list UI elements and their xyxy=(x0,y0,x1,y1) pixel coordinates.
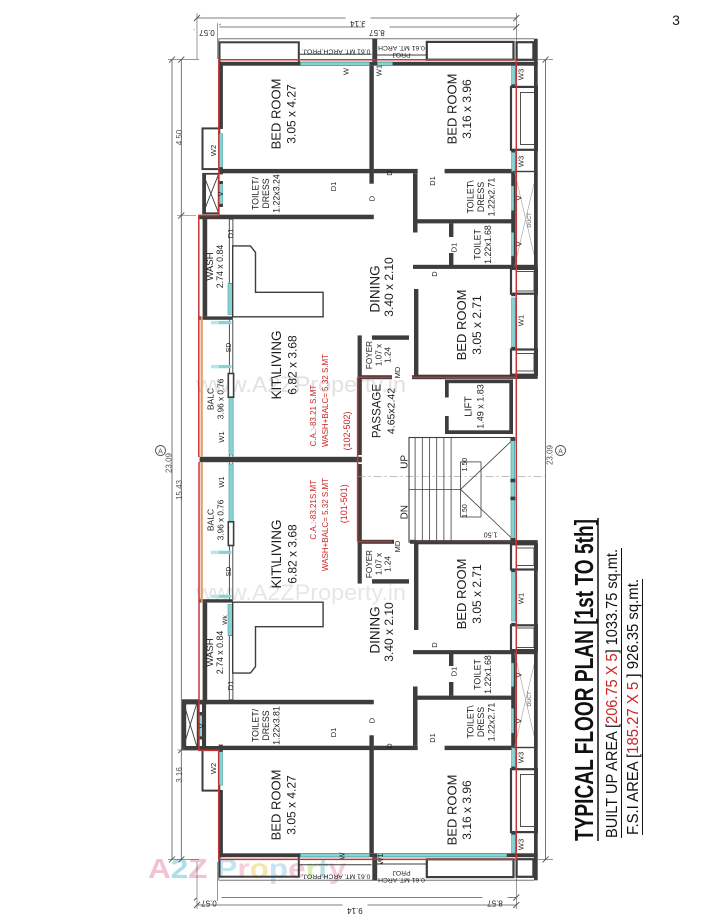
svg-text:TOILET\: TOILET\ xyxy=(466,705,476,739)
svg-text:TYPICAL FLOOR PLAN [1st TO 5th: TYPICAL FLOOR PLAN [1st TO 5th] xyxy=(569,519,599,841)
svg-text:8.57: 8.57 xyxy=(487,898,503,907)
svg-text:1.50: 1.50 xyxy=(462,458,469,472)
svg-text:1.22x3.81: 1.22x3.81 xyxy=(272,706,282,745)
svg-text:3.05 x 4.27: 3.05 x 4.27 xyxy=(284,775,298,835)
svg-text:1.24: 1.24 xyxy=(383,556,392,572)
svg-text:6.82 x 3.68: 6.82 x 3.68 xyxy=(285,524,299,584)
svg-text:BALC: BALC xyxy=(206,388,216,410)
svg-text:KIT\LIVING: KIT\LIVING xyxy=(269,330,284,399)
svg-text:3.40 x 2.10: 3.40 x 2.10 xyxy=(382,602,396,662)
svg-text:W2: W2 xyxy=(209,763,218,774)
svg-text:D1: D1 xyxy=(329,182,338,192)
svg-text:BED ROOM: BED ROOM xyxy=(269,770,284,841)
svg-text:TOILET/: TOILET/ xyxy=(251,176,261,210)
svg-text:DINING: DINING xyxy=(368,606,383,653)
svg-text:WASH+BALC= 5.32 S.MT: WASH+BALC= 5.32 S.MT xyxy=(321,354,330,447)
svg-text:W1: W1 xyxy=(217,431,226,442)
svg-text:BED ROOM: BED ROOM xyxy=(454,559,469,630)
svg-text:0.61 MT. ARCH: 0.61 MT. ARCH xyxy=(378,44,425,51)
svg-text:(102-502): (102-502) xyxy=(342,411,352,450)
svg-text:BALC: BALC xyxy=(206,509,216,531)
svg-text:V: V xyxy=(197,723,206,728)
svg-text:D: D xyxy=(430,642,439,648)
svg-text:D1: D1 xyxy=(428,733,437,743)
svg-text:W3: W3 xyxy=(517,156,526,167)
svg-text:W1: W1 xyxy=(517,315,526,326)
svg-text:MD: MD xyxy=(393,540,402,552)
svg-text:TOILET\: TOILET\ xyxy=(466,180,476,214)
svg-text:3.05 x 4.27: 3.05 x 4.27 xyxy=(284,84,298,144)
svg-text:BED ROOM: BED ROOM xyxy=(269,79,284,150)
svg-text:3.05 x 2.71: 3.05 x 2.71 xyxy=(470,564,484,624)
svg-text:3.16: 3.16 xyxy=(175,767,184,783)
svg-text:W3: W3 xyxy=(517,752,526,763)
svg-text:W1: W1 xyxy=(375,65,384,76)
svg-text:DUCT: DUCT xyxy=(527,212,533,228)
svg-text:W1: W1 xyxy=(517,593,526,604)
svg-text:FOYER: FOYER xyxy=(365,550,374,578)
svg-text:SD: SD xyxy=(226,343,233,353)
svg-text:3: 3 xyxy=(672,12,680,28)
svg-text:0.57: 0.57 xyxy=(201,898,217,907)
svg-text:DRESS: DRESS xyxy=(261,710,271,740)
svg-text:3.96 x 0.76: 3.96 x 0.76 xyxy=(216,378,225,419)
svg-text:1.07 x: 1.07 x xyxy=(374,344,383,366)
svg-text:8.57: 8.57 xyxy=(369,28,385,37)
svg-text:SD: SD xyxy=(226,567,233,577)
svg-text:15.43: 15.43 xyxy=(175,479,184,500)
svg-text:F.S.I AREA [185.27 X 5 ] 926.: F.S.I AREA [185.27 X 5 ] 926.35 sq.mt. xyxy=(625,579,642,835)
svg-text:C.A.:-83.21 S.MT: C.A.:-83.21 S.MT xyxy=(309,385,318,447)
svg-text:UP: UP xyxy=(400,455,411,469)
svg-text:9.14: 9.14 xyxy=(347,906,363,915)
svg-text:BED ROOM: BED ROOM xyxy=(444,74,459,145)
svg-text:6.82 x 3.68: 6.82 x 3.68 xyxy=(285,335,299,395)
svg-text:D1: D1 xyxy=(226,681,235,691)
svg-text:1.22x3.24: 1.22x3.24 xyxy=(272,174,282,213)
svg-text:4.50: 4.50 xyxy=(175,129,184,145)
svg-text:W1: W1 xyxy=(217,476,226,487)
svg-text:9.14: 9.14 xyxy=(350,19,366,28)
svg-text:W1: W1 xyxy=(376,853,385,864)
svg-text:W: W xyxy=(342,67,351,75)
svg-text:2.74 x 0.84: 2.74 x 0.84 xyxy=(215,245,225,289)
svg-text:LIFT: LIFT xyxy=(464,396,475,417)
svg-text:DRESS: DRESS xyxy=(476,182,486,212)
svg-text:D: D xyxy=(430,271,439,277)
svg-text:BUILT UP AREA [206.75 X 5] 10: BUILT UP AREA [206.75 X 5] 1033.75 sq.mt… xyxy=(604,549,621,838)
svg-text:3.40 x 2.10: 3.40 x 2.10 xyxy=(382,257,396,317)
svg-text:A: A xyxy=(558,449,563,456)
svg-text:V: V xyxy=(216,191,225,196)
svg-text:PROJ: PROJ xyxy=(392,869,410,876)
svg-text:W2: W2 xyxy=(209,145,218,156)
svg-text:1.22x2.71: 1.22x2.71 xyxy=(487,703,497,742)
svg-text:3.16 x 3.96: 3.16 x 3.96 xyxy=(460,79,474,139)
svg-text:(101-501): (101-501) xyxy=(339,484,349,523)
svg-text:W: W xyxy=(338,852,347,860)
svg-text:2.74 x 0.84: 2.74 x 0.84 xyxy=(215,631,225,675)
svg-text:PROJ: PROJ xyxy=(392,51,410,58)
svg-text:Wk: Wk xyxy=(222,615,229,625)
svg-text:KIT\LIVING: KIT\LIVING xyxy=(269,519,284,588)
svg-text:W3: W3 xyxy=(517,839,526,850)
svg-text:W3: W3 xyxy=(517,69,526,80)
svg-text:DRESS: DRESS xyxy=(476,707,486,737)
svg-text:DN: DN xyxy=(400,505,411,519)
svg-text:23.09: 23.09 xyxy=(545,444,554,465)
svg-text:D1: D1 xyxy=(450,667,459,677)
svg-text:D1: D1 xyxy=(329,728,338,738)
svg-text:V: V xyxy=(515,718,524,723)
svg-text:1.50: 1.50 xyxy=(484,531,498,538)
svg-text:D1: D1 xyxy=(226,229,235,239)
svg-text:FOYER: FOYER xyxy=(365,341,374,369)
svg-text:D1: D1 xyxy=(428,176,437,186)
svg-text:DRESS: DRESS xyxy=(261,178,271,208)
svg-text:D: D xyxy=(368,195,377,201)
svg-text:BED ROOM: BED ROOM xyxy=(454,290,469,361)
svg-text:PASSAGE: PASSAGE xyxy=(372,384,384,438)
svg-text:0.61 MT. ARCH.PROJ.: 0.61 MT. ARCH.PROJ. xyxy=(302,873,371,880)
svg-text:1.24: 1.24 xyxy=(383,347,392,363)
svg-text:0.57: 0.57 xyxy=(199,28,215,37)
svg-text:BED ROOM: BED ROOM xyxy=(444,775,459,846)
svg-text:0.61 MT. ARCH.PROJ.: 0.61 MT. ARCH.PROJ. xyxy=(302,47,371,54)
svg-text:V: V xyxy=(515,195,524,200)
svg-text:C.A.:-83.21S.MT: C.A.:-83.21S.MT xyxy=(309,480,318,540)
svg-text:D1: D1 xyxy=(450,243,459,253)
svg-text:3.05 x 2.71: 3.05 x 2.71 xyxy=(470,295,484,355)
svg-text:1.49 x 1.83: 1.49 x 1.83 xyxy=(476,384,486,429)
svg-text:1.22x2.71: 1.22x2.71 xyxy=(487,178,497,217)
svg-text:23.09: 23.09 xyxy=(164,452,173,473)
svg-text:DINING: DINING xyxy=(368,265,383,312)
svg-text:TOILET/: TOILET/ xyxy=(251,708,261,742)
svg-text:1.50: 1.50 xyxy=(462,504,469,518)
svg-text:WASH+BALC= 5.32 S.MT: WASH+BALC= 5.32 S.MT xyxy=(321,478,330,571)
svg-text:1.22x1.68: 1.22x1.68 xyxy=(483,655,493,694)
svg-text:TOILET: TOILET xyxy=(473,229,483,260)
svg-text:D: D xyxy=(385,743,394,749)
svg-text:V: V xyxy=(515,241,524,246)
svg-text:3.16 x 3.96: 3.16 x 3.96 xyxy=(460,780,474,840)
svg-text:1.22x1.68: 1.22x1.68 xyxy=(483,225,493,264)
svg-text:1.07 x: 1.07 x xyxy=(374,553,383,575)
svg-text:0.61 MT. ARCH: 0.61 MT. ARCH xyxy=(378,876,425,883)
svg-text:D: D xyxy=(385,170,394,176)
svg-text:A: A xyxy=(158,449,163,456)
svg-text:MD: MD xyxy=(393,366,402,378)
svg-text:DUCT: DUCT xyxy=(527,691,533,707)
svg-text:4.65x2.42: 4.65x2.42 xyxy=(385,388,397,434)
svg-text:TOILET: TOILET xyxy=(473,659,483,690)
svg-text:V: V xyxy=(515,672,524,677)
svg-text:3.96 x 0.76: 3.96 x 0.76 xyxy=(216,499,225,540)
svg-text:D: D xyxy=(368,717,377,723)
